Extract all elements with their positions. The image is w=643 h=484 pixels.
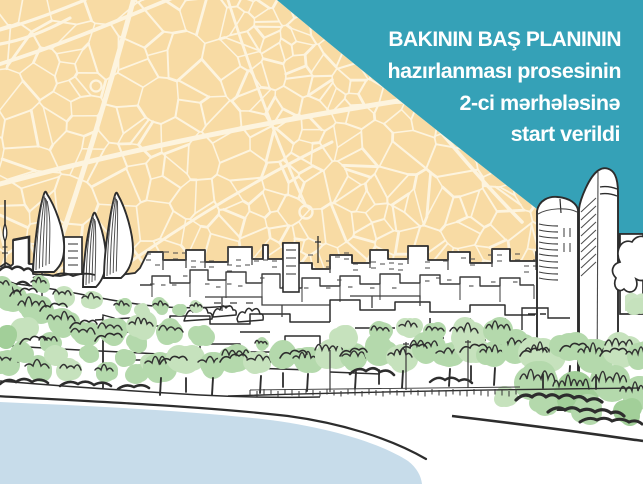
svg-text:start verildi: start verildi: [511, 122, 620, 146]
svg-text:hazırlanması prosesinin: hazırlanması prosesinin: [388, 59, 621, 83]
svg-text:2-ci mərhələsinə: 2-ci mərhələsinə: [459, 91, 620, 115]
svg-text:BAKININ BAŞ PLANININ: BAKININ BAŞ PLANININ: [388, 28, 621, 51]
